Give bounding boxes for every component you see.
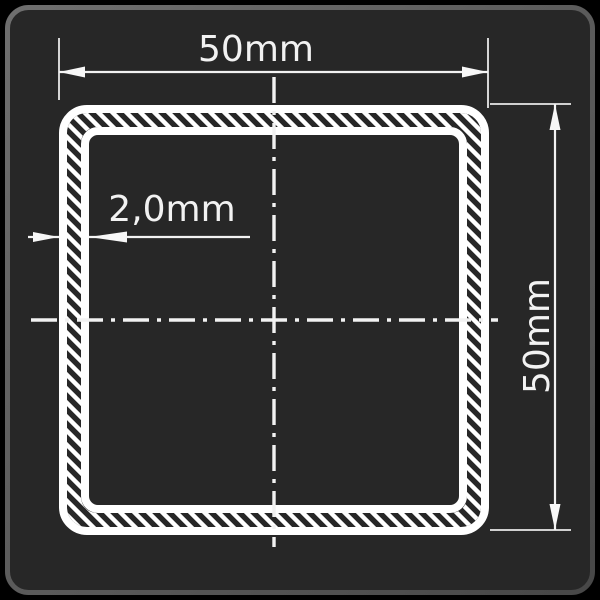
drawing-canvas: 50mm 50mm 2,0mm <box>0 0 600 600</box>
square-tube-technical-drawing: 50mm 50mm 2,0mm <box>0 0 600 600</box>
height-dimension-label: 50mm <box>517 278 558 394</box>
wall-thickness-label: 2,0mm <box>108 189 235 230</box>
width-dimension-label: 50mm <box>198 29 314 70</box>
